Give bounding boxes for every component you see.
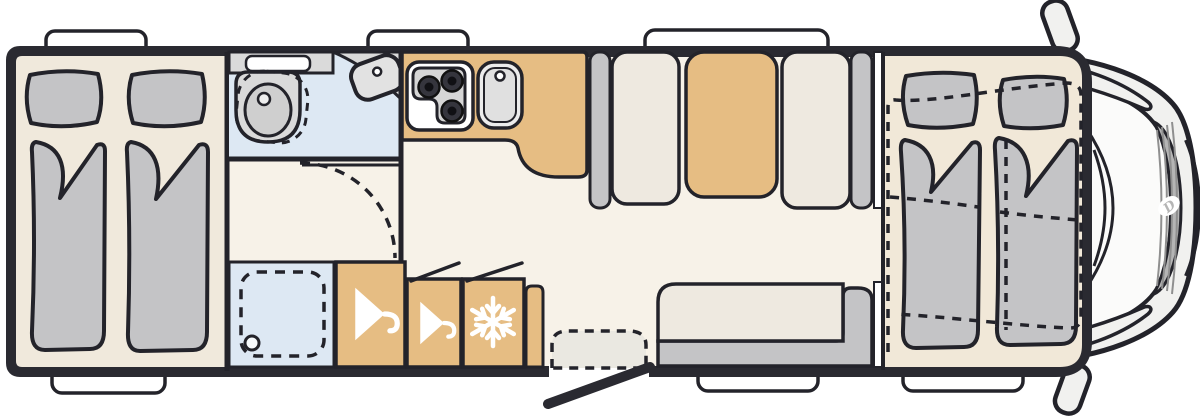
sofa: [658, 282, 882, 367]
fridge: [463, 279, 524, 367]
wardrobe-2: [407, 279, 461, 367]
dinette-seat: [782, 52, 850, 208]
stove-burner: [442, 71, 463, 92]
shower-drain: [245, 336, 259, 350]
stove-burner: [442, 101, 463, 122]
step-cabinet: [526, 286, 543, 367]
dinette-backrest: [590, 52, 610, 208]
sofa-seat: [658, 284, 843, 341]
kitchen-sink: [478, 62, 522, 128]
vanity-cabinet: [246, 56, 310, 71]
dinette-seat: [612, 52, 679, 204]
rear-bedroom: [16, 52, 227, 371]
dinette: [590, 52, 882, 208]
bed-pillow: [129, 71, 205, 126]
toilet: [234, 69, 311, 146]
shower: [229, 262, 334, 367]
floorplan-svg: D: [0, 0, 1200, 416]
dinette-table: [686, 52, 777, 197]
dinette-backrest: [851, 52, 872, 208]
divider-panel: [874, 52, 882, 208]
front-bed: [883, 52, 1082, 370]
divider-panel: [874, 282, 882, 367]
entry-door: [548, 331, 650, 404]
stove-burner: [419, 77, 440, 98]
entry-step-arc: [552, 331, 646, 368]
bed-pillow: [27, 71, 102, 126]
stove: [407, 62, 473, 130]
wardrobe-1: [336, 262, 405, 367]
motorhome-floorplan: D: [0, 0, 1200, 416]
